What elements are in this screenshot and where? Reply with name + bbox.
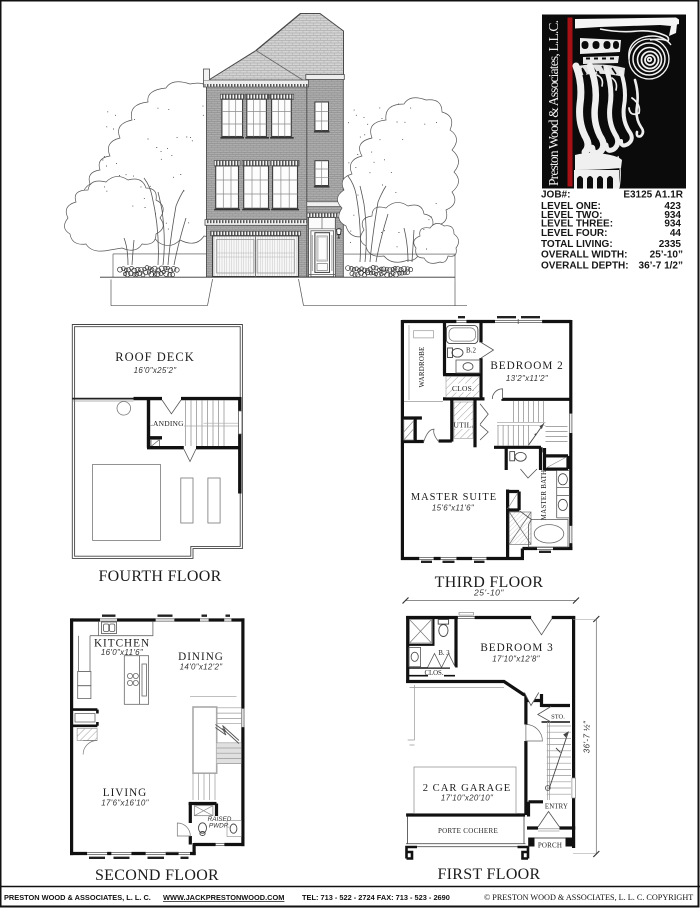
svg-text:STO.: STO.: [551, 714, 565, 721]
svg-text:13'2"x11'2": 13'2"x11'2": [506, 374, 549, 383]
svg-text:25’-10”: 25’-10”: [650, 250, 683, 261]
svg-text:ENTRY: ENTRY: [545, 804, 568, 811]
svg-text:OVERALL DEPTH:: OVERALL DEPTH:: [541, 261, 629, 272]
svg-text:PORTE COCHERE: PORTE COCHERE: [438, 827, 498, 835]
svg-text:TEL: 713 - 522 - 2724 FAX:: TEL: 713 - 522 - 2724 FAX: 713 - 523 - 2…: [302, 893, 450, 902]
svg-text:14'0"x12'2": 14'0"x12'2": [180, 663, 224, 672]
svg-text:BEDROOM 3: BEDROOM 3: [480, 642, 553, 654]
svg-text:17'10"x12'8": 17'10"x12'8": [492, 655, 540, 664]
svg-text:FOURTH FLOOR: FOURTH FLOOR: [98, 568, 221, 585]
svg-text:17'6"x16'10": 17'6"x16'10": [101, 799, 149, 808]
svg-text:B.2: B.2: [466, 347, 476, 355]
svg-text:CLOS.: CLOS.: [452, 384, 474, 393]
svg-text:Preston Wood & Associates, L.L: Preston Wood & Associates, L.L.C.: [546, 20, 561, 186]
svg-text:JOB#:: JOB#:: [541, 190, 570, 201]
svg-text:THIRD FLOOR: THIRD FLOOR: [435, 574, 544, 591]
svg-text:36’-7 1/2”: 36’-7 1/2”: [639, 261, 683, 272]
svg-text:17'10"x20'10": 17'10"x20'10": [441, 794, 494, 803]
svg-text:16'0"x25'2": 16'0"x25'2": [134, 366, 178, 375]
svg-text:2335: 2335: [659, 239, 682, 250]
svg-text:PORCH: PORCH: [538, 842, 562, 850]
svg-text:15'6"x11'6": 15'6"x11'6": [432, 504, 475, 513]
svg-text:DINING: DINING: [178, 651, 224, 663]
svg-text:PRESTON WOOD & ASSOCIATES, L.: PRESTON WOOD & ASSOCIATES, L. L. C.: [4, 893, 151, 902]
svg-text:© PRESTON WOOD & ASSOCIATES, L: © PRESTON WOOD & ASSOCIATES, L. L. C. CO…: [484, 893, 693, 902]
svg-text:LEVEL FOUR:: LEVEL FOUR:: [541, 228, 607, 239]
svg-text:44: 44: [670, 228, 682, 239]
svg-text:BEDROOM 2: BEDROOM 2: [490, 360, 563, 372]
svg-text:LANDING: LANDING: [148, 419, 184, 428]
svg-text:FIRST FLOOR: FIRST FLOOR: [437, 866, 540, 883]
svg-text:WWW.JACKPRESTONWOOD.COM: WWW.JACKPRESTONWOOD.COM: [163, 893, 284, 902]
svg-text:SECOND FLOOR: SECOND FLOOR: [95, 867, 219, 884]
svg-text:OVERALL WIDTH:: OVERALL WIDTH:: [541, 250, 627, 261]
svg-text:MASTER BATH: MASTER BATH: [540, 470, 548, 521]
svg-text:E3125 A1.1R: E3125 A1.1R: [623, 190, 683, 201]
svg-text:UTIL.: UTIL.: [454, 421, 474, 430]
svg-text:ROOF DECK: ROOF DECK: [115, 350, 195, 364]
svg-text:2 CAR GARAGE: 2 CAR GARAGE: [423, 783, 512, 794]
svg-text:LIVING: LIVING: [103, 787, 148, 799]
svg-text:CLOS.: CLOS.: [424, 670, 443, 677]
svg-text:36'-7 ½": 36'-7 ½": [583, 720, 592, 753]
svg-text:WARDROBE: WARDROBE: [418, 347, 426, 388]
svg-text:MASTER SUITE: MASTER SUITE: [411, 492, 497, 503]
svg-text:TOTAL LIVING:: TOTAL LIVING:: [541, 239, 613, 250]
